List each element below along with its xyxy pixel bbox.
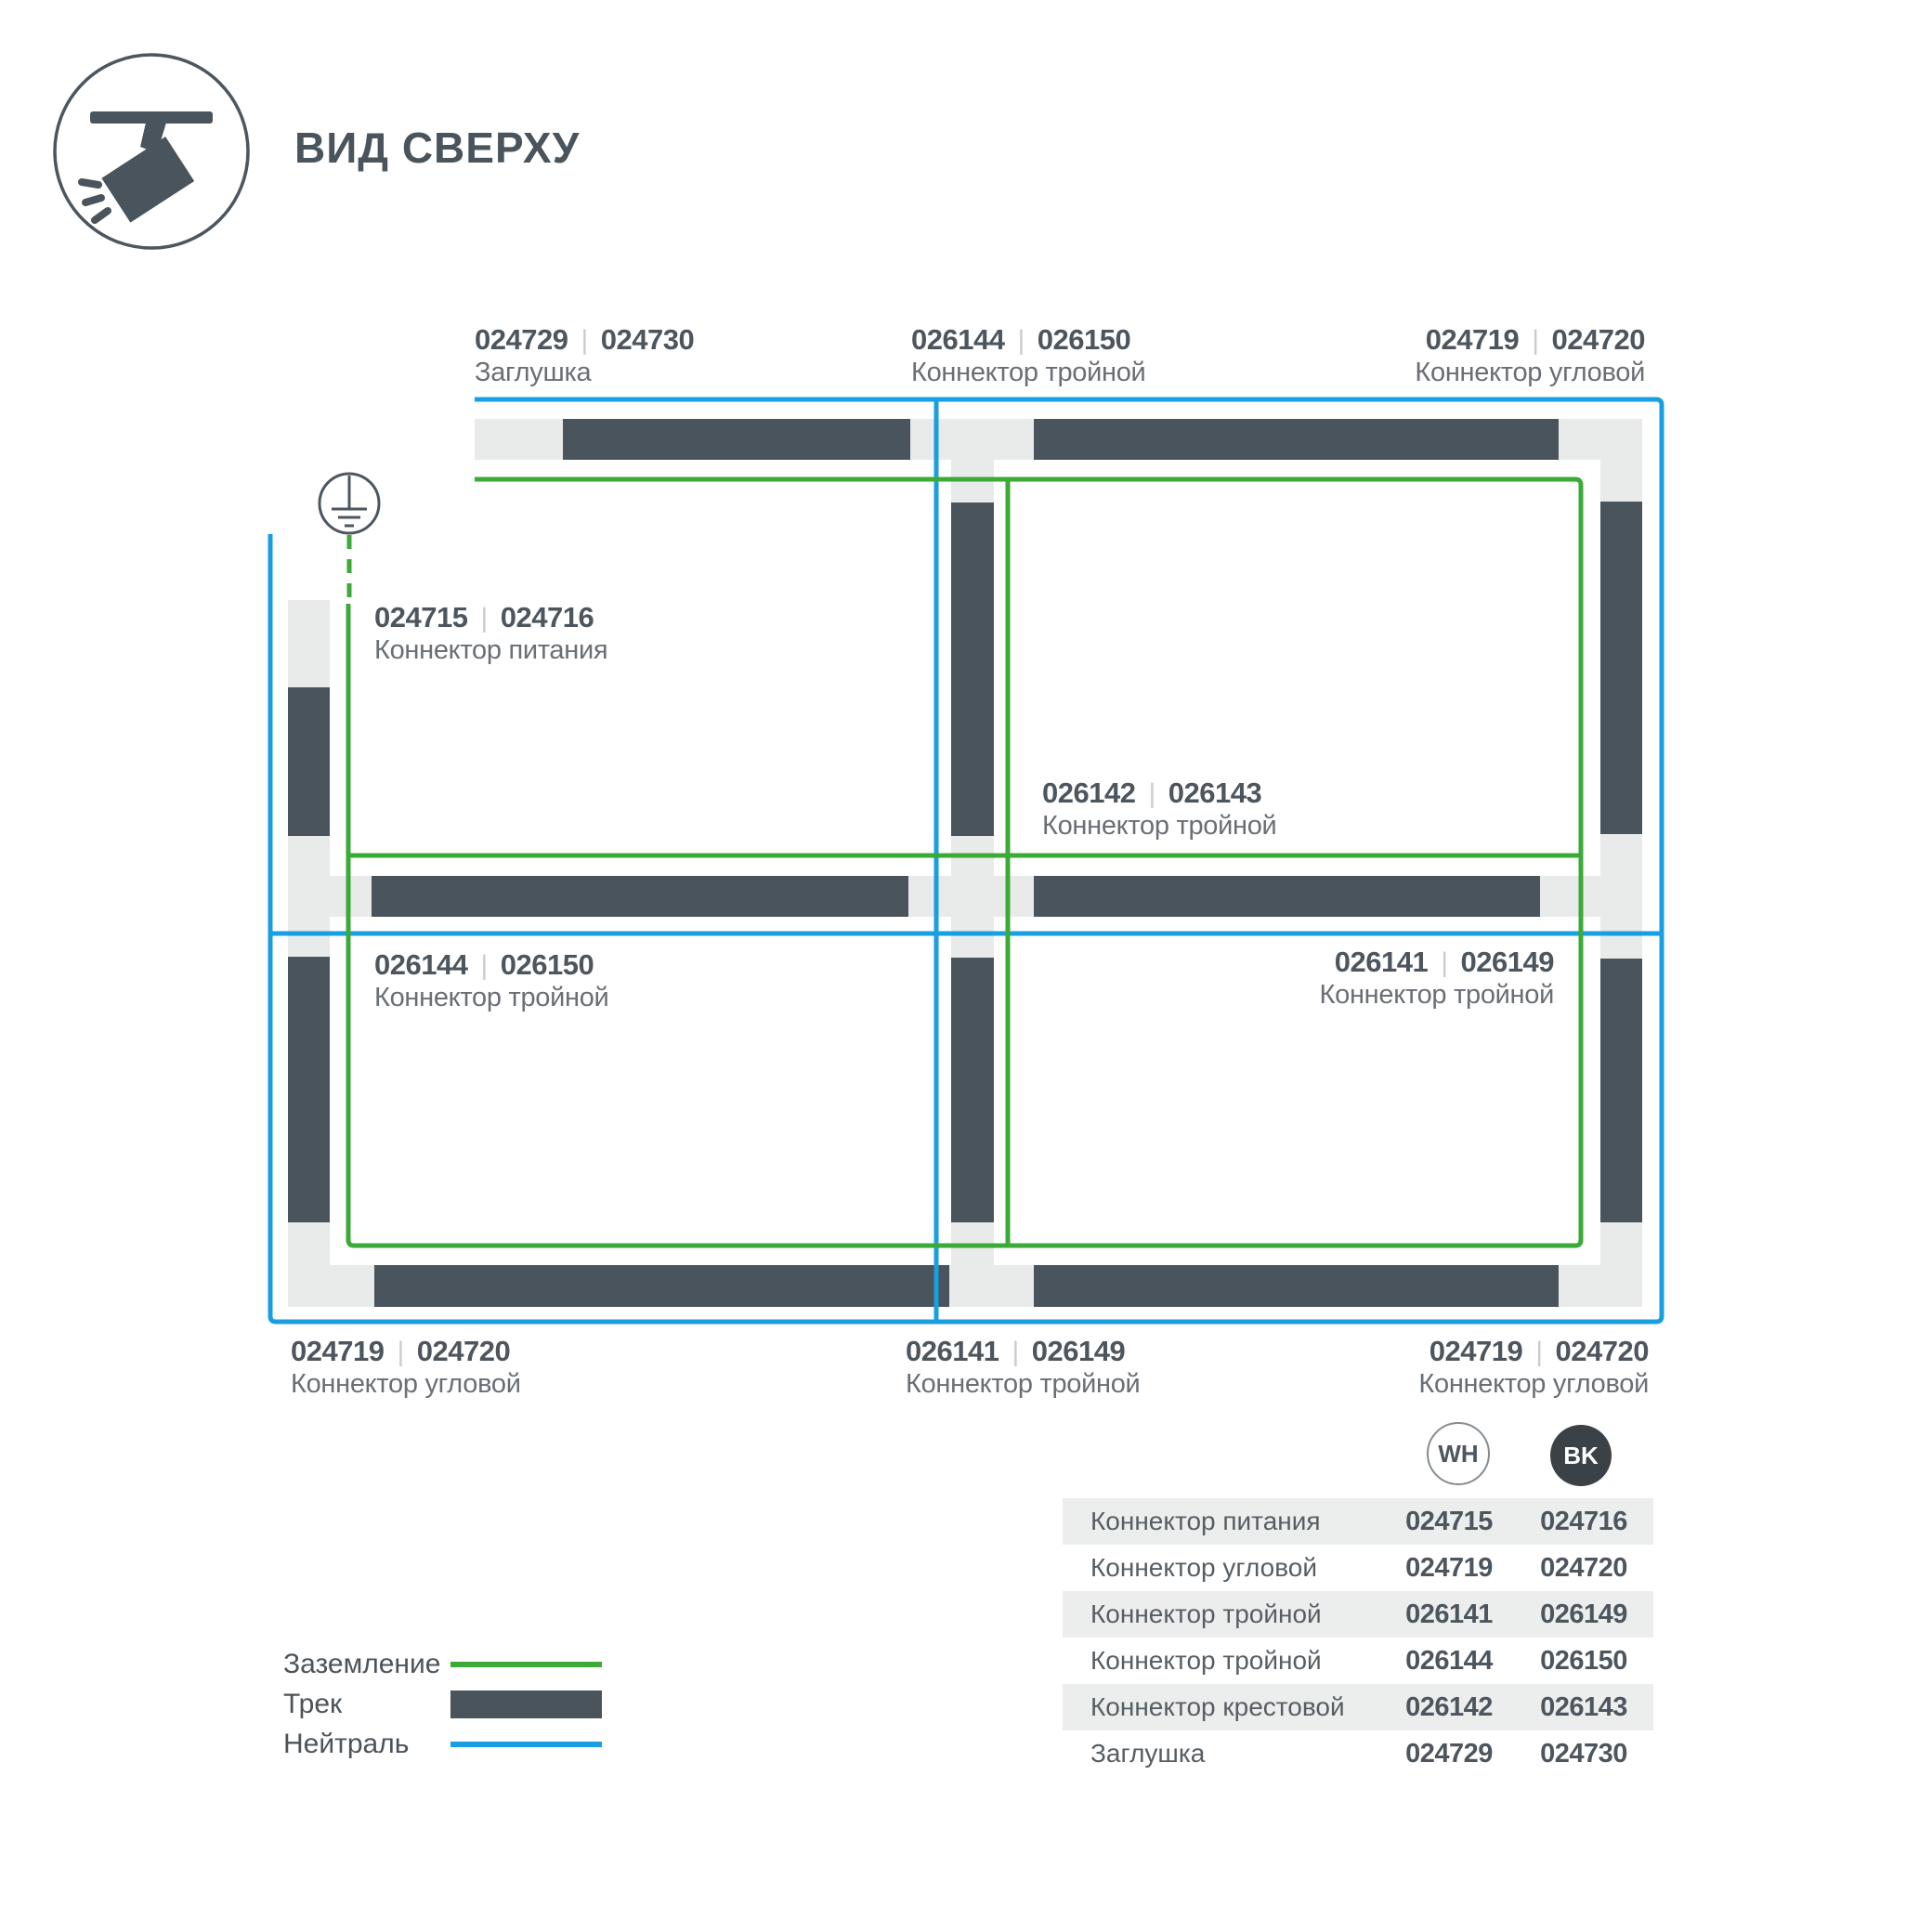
table-row: Коннектор питания024715024716 — [1063, 1498, 1653, 1545]
color-badge-white: WH — [1427, 1422, 1490, 1485]
legend-item-ground: Заземление — [283, 1644, 604, 1684]
table-row: Коннектор тройной026141026149 — [1063, 1591, 1653, 1638]
table-row: Коннектор угловой024719024720 — [1063, 1545, 1653, 1591]
page: ВИД СВЕРХУ — [0, 0, 1932, 1932]
article-table: Коннектор питания024715024716 Коннектор … — [1063, 1498, 1653, 1777]
label-t-connector-top: 026144|026150 Коннектор тройной — [911, 323, 1145, 388]
neutral-line-swatch — [450, 1742, 602, 1747]
label-corner-bottom-left: 024719|024720 Коннектор угловой — [291, 1335, 521, 1400]
label-t-connector-left: 026144|026150 Коннектор тройной — [374, 948, 608, 1013]
legend-item-track: Трек — [283, 1684, 604, 1724]
earth-ground-symbol — [320, 474, 379, 533]
color-badge-black: BK — [1550, 1425, 1612, 1486]
label-cross-connector-center: 026142|026143 Коннектор тройной — [1042, 777, 1276, 842]
table-row: Заглушка024729024730 — [1063, 1730, 1653, 1777]
label-t-connector-right: 026141|026149 Коннектор тройной — [1320, 946, 1554, 1011]
label-power-connector: 024715|024716 Коннектор питания — [374, 601, 607, 666]
label-corner-top-right: 024719|024720 Коннектор угловой — [1415, 323, 1645, 388]
legend-item-neutral: Нейтраль — [283, 1724, 604, 1764]
label-corner-bottom-right: 024719|024720 Коннектор угловой — [1418, 1335, 1649, 1400]
table-row: Коннектор крестовой026142026143 — [1063, 1684, 1653, 1730]
table-row: Коннектор тройной026144026150 — [1063, 1638, 1653, 1684]
ground-line-swatch — [450, 1662, 602, 1667]
label-t-connector-bottom: 026141|026149 Коннектор тройной — [906, 1335, 1140, 1400]
label-endcap-top-left: 024729|024730 Заглушка — [475, 323, 694, 388]
legend: Заземление Трек Нейтраль — [283, 1644, 604, 1764]
track-bar-swatch — [450, 1690, 602, 1718]
